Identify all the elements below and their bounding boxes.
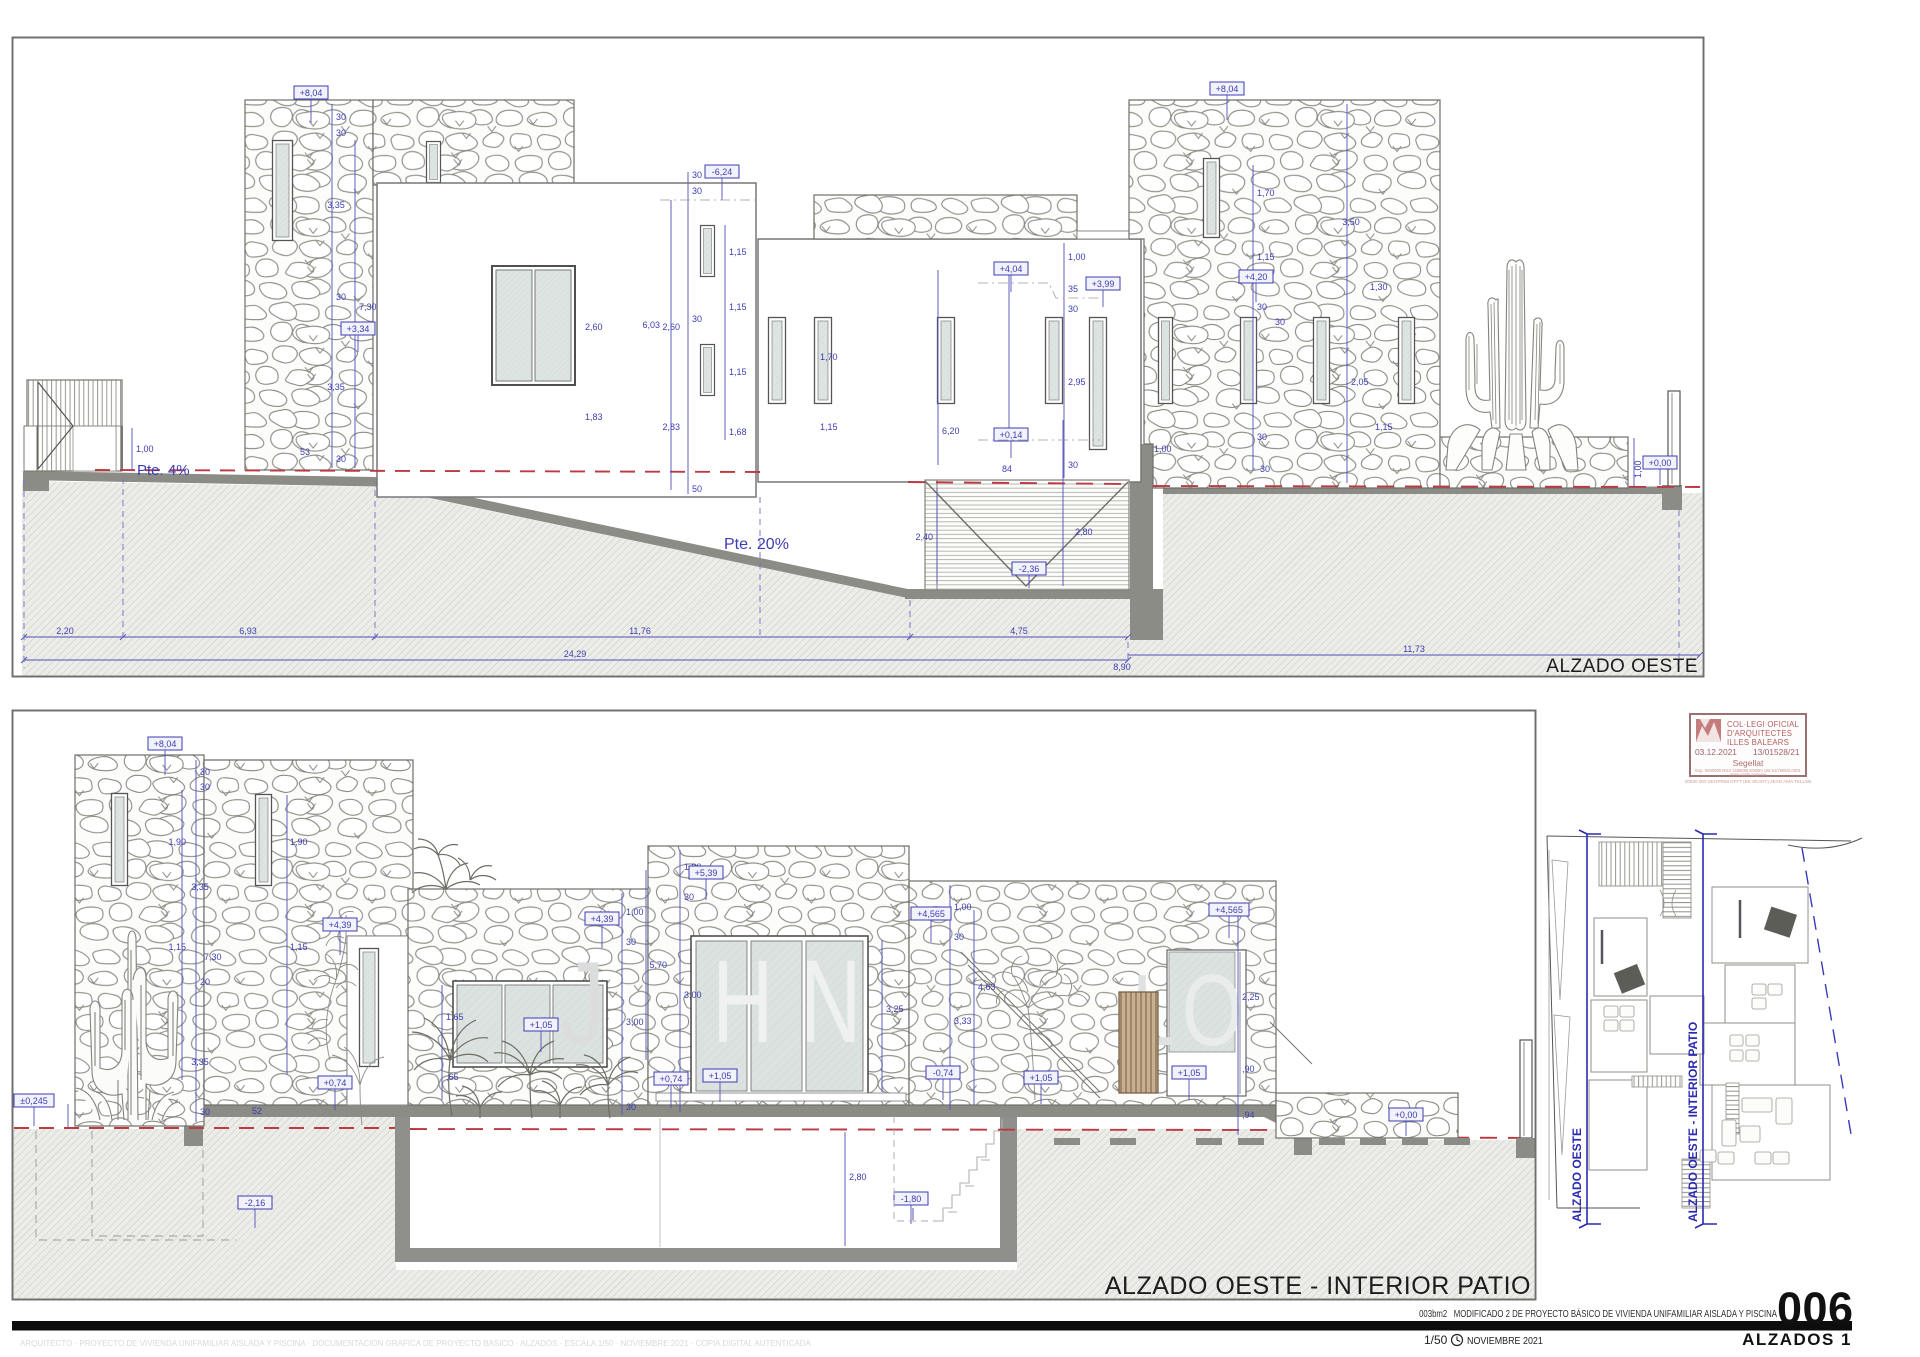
svg-text:ALZADO OESTE: ALZADO OESTE: [1546, 656, 1698, 677]
svg-text:30: 30: [336, 112, 346, 122]
svg-text:+1,05: +1,05: [530, 1020, 553, 1030]
svg-text:Pte. 4%: Pte. 4%: [137, 462, 190, 479]
svg-text:1,00: 1,00: [954, 902, 972, 912]
svg-text:1,15: 1,15: [729, 367, 747, 377]
svg-text:11,76: 11,76: [629, 626, 651, 636]
svg-text:3,50: 3,50: [1342, 217, 1360, 227]
svg-text:2,83: 2,83: [662, 422, 680, 432]
svg-text:2,60: 2,60: [585, 322, 603, 332]
svg-text:ALZADO OESTE - INTERIOR PATIO: ALZADO OESTE - INTERIOR PATIO: [1686, 1022, 1700, 1222]
svg-text:1,00: 1,00: [136, 444, 154, 454]
svg-text:ILLES BALEARS: ILLES BALEARS: [1727, 738, 1789, 747]
svg-text:30: 30: [1068, 460, 1078, 470]
svg-text:003bm2 MODIFICADO 2 DE PROYE: 003bm2 MODIFICADO 2 DE PROYECTO BÁSICO D…: [1419, 1308, 1777, 1319]
svg-text:-6,24: -6,24: [712, 167, 733, 177]
svg-text:2,05: 2,05: [1351, 377, 1369, 387]
svg-text:+4,565: +4,565: [1215, 905, 1243, 915]
svg-text:3,35: 3,35: [327, 200, 345, 210]
svg-text:,65: ,65: [446, 1072, 459, 1082]
svg-text:1,83: 1,83: [585, 412, 603, 422]
svg-text:4,75: 4,75: [1010, 626, 1028, 636]
svg-text:1,90: 1,90: [168, 837, 186, 847]
svg-text:1,30: 1,30: [1370, 282, 1388, 292]
svg-text:ALZADO OESTE: ALZADO OESTE: [1570, 1128, 1584, 1222]
svg-text:3,35: 3,35: [191, 882, 209, 892]
svg-text:1,00: 1,00: [1154, 444, 1172, 454]
svg-text:1,65: 1,65: [446, 1012, 464, 1022]
svg-text:3,35: 3,35: [191, 1057, 209, 1067]
svg-text:+1,05: +1,05: [1178, 1068, 1201, 1078]
svg-text:+1,05: +1,05: [1030, 1073, 1053, 1083]
svg-text:30: 30: [1257, 302, 1267, 312]
svg-text:+0,14: +0,14: [1000, 430, 1023, 440]
svg-text:+4,39: +4,39: [329, 920, 352, 930]
svg-text:4,63: 4,63: [978, 982, 996, 992]
svg-text:1,70: 1,70: [1257, 188, 1275, 198]
svg-text:Segellat: Segellat: [1733, 758, 1764, 768]
svg-text:ARQUITECTO · PROYECTO DE VIVIE: ARQUITECTO · PROYECTO DE VIVIENDA UNIFAM…: [20, 1339, 812, 1348]
svg-text:+3,34: +3,34: [347, 324, 370, 334]
svg-text:NOVIEMBRE 2021: NOVIEMBRE 2021: [1467, 1335, 1543, 1347]
svg-text:00000 000 SEGPRIM DFFT (EE SEA: 00000 000 SEGPRIM DFFT (EE SEART) 4EAD A…: [1685, 779, 1811, 784]
svg-text:1/50: 1/50: [1424, 1333, 1448, 1347]
svg-text:ALZADOS 1: ALZADOS 1: [1742, 1330, 1852, 1349]
svg-text:,94: ,94: [1242, 1110, 1255, 1120]
svg-text:-2,16: -2,16: [245, 1198, 266, 1208]
svg-text:2,80: 2,80: [1075, 527, 1093, 537]
svg-text:8,90: 8,90: [1113, 662, 1131, 672]
svg-text:30: 30: [684, 892, 694, 902]
svg-text:30: 30: [336, 454, 346, 464]
svg-text:+8,04: +8,04: [154, 739, 177, 749]
svg-text:,90: ,90: [1242, 1064, 1255, 1074]
svg-text:30: 30: [954, 932, 964, 942]
svg-text:30: 30: [200, 1107, 210, 1117]
svg-text:1,00: 1,00: [626, 907, 644, 917]
svg-text:1,15: 1,15: [729, 247, 747, 257]
svg-text:2,80: 2,80: [849, 1172, 867, 1182]
svg-text:30: 30: [200, 767, 210, 777]
svg-text:2,60: 2,60: [662, 322, 680, 332]
svg-text:H: H: [712, 935, 773, 1067]
svg-text:30: 30: [336, 292, 346, 302]
svg-text:3,35: 3,35: [327, 382, 345, 392]
svg-text:2,95: 2,95: [1068, 377, 1086, 387]
svg-text:J: J: [560, 938, 605, 1070]
svg-text:+0,00: +0,00: [1395, 1110, 1418, 1120]
svg-text:30: 30: [692, 314, 702, 324]
svg-text:3,33: 3,33: [954, 1016, 972, 1026]
svg-text:+1,05: +1,05: [709, 1071, 732, 1081]
svg-text:30: 30: [336, 128, 346, 138]
svg-text:3,25: 3,25: [886, 1004, 904, 1014]
svg-text:O: O: [1182, 954, 1243, 1067]
svg-text:Pte. 20%: Pte. 20%: [724, 536, 789, 553]
svg-text:-1,80: -1,80: [901, 1194, 922, 1204]
svg-text:1,15: 1,15: [1375, 422, 1393, 432]
svg-text:2,40: 2,40: [915, 532, 933, 542]
svg-text:1,15: 1,15: [729, 302, 747, 312]
svg-text:1,15: 1,15: [820, 422, 838, 432]
svg-text:1,15: 1,15: [290, 942, 308, 952]
svg-text:6,93: 6,93: [239, 626, 257, 636]
svg-text:+0,74: +0,74: [660, 1074, 683, 1084]
svg-text:N: N: [800, 935, 861, 1067]
svg-text:30: 30: [1260, 464, 1270, 474]
svg-text:5,70: 5,70: [649, 960, 667, 970]
svg-text:2,20: 2,20: [56, 626, 74, 636]
svg-text:+4,04: +4,04: [1000, 264, 1023, 274]
svg-text:+8,04: +8,04: [1216, 84, 1239, 94]
svg-text:7,30: 7,30: [204, 952, 222, 962]
svg-text:1,70: 1,70: [820, 352, 838, 362]
svg-text:1,00: 1,00: [1633, 460, 1643, 478]
svg-text:1,15: 1,15: [168, 942, 186, 952]
svg-text:30: 30: [1275, 317, 1285, 327]
svg-text:2,25: 2,25: [1242, 992, 1260, 1002]
svg-text:+4,20: +4,20: [1245, 272, 1268, 282]
svg-text:+0,00: +0,00: [1649, 458, 1672, 468]
svg-text:www.coaib.org/eine: www.coaib.org/eine: [1730, 772, 1767, 777]
svg-text:D'ARQUITECTES: D'ARQUITECTES: [1727, 729, 1792, 738]
svg-text:84: 84: [1002, 464, 1012, 474]
svg-text:1,00: 1,00: [1068, 252, 1086, 262]
svg-text:24,29: 24,29: [564, 649, 587, 659]
svg-text:+0,74: +0,74: [324, 1078, 347, 1088]
svg-text:20: 20: [200, 977, 210, 987]
svg-text:53: 53: [300, 447, 310, 457]
svg-text:1,15: 1,15: [1257, 252, 1275, 262]
svg-text:30: 30: [200, 782, 210, 792]
svg-text:03.12.2021: 03.12.2021: [1695, 747, 1737, 757]
svg-text:30: 30: [1068, 304, 1078, 314]
svg-text:3,00: 3,00: [626, 1017, 644, 1027]
svg-text:30: 30: [626, 937, 636, 947]
svg-text:52: 52: [252, 1106, 262, 1116]
svg-text:+3,99: +3,99: [1092, 279, 1115, 289]
svg-text:1,90: 1,90: [290, 837, 308, 847]
svg-text:35: 35: [1068, 284, 1078, 294]
svg-text:+4,565: +4,565: [917, 909, 945, 919]
svg-text:30: 30: [1257, 432, 1267, 442]
svg-text:30: 30: [692, 186, 702, 196]
svg-text:006: 006: [1777, 1283, 1854, 1334]
svg-text:ALZADO OESTE - INTERIOR PATIO: ALZADO OESTE - INTERIOR PATIO: [1105, 1272, 1531, 1300]
svg-text:COL·LEGI OFICIAL: COL·LEGI OFICIAL: [1727, 720, 1800, 729]
svg-text:13/01528/21: 13/01528/21: [1753, 747, 1800, 757]
svg-text:7,30: 7,30: [359, 302, 377, 312]
svg-text:6,20: 6,20: [942, 426, 960, 436]
svg-text:-2,36: -2,36: [1019, 564, 1040, 574]
svg-text:50: 50: [692, 484, 702, 494]
svg-text:+5,39: +5,39: [695, 868, 718, 878]
svg-text:±0,245: ±0,245: [20, 1096, 47, 1106]
svg-text:1,68: 1,68: [729, 427, 747, 437]
svg-text:+4,39: +4,39: [591, 914, 614, 924]
svg-text:3,00: 3,00: [684, 990, 702, 1000]
svg-text:30: 30: [692, 170, 702, 180]
svg-text:30: 30: [626, 1102, 636, 1112]
svg-text:-0,74: -0,74: [933, 1068, 954, 1078]
svg-text:11,73: 11,73: [1403, 644, 1425, 654]
svg-text:+8,04: +8,04: [300, 88, 323, 98]
svg-text:6,03: 6,03: [642, 320, 660, 330]
